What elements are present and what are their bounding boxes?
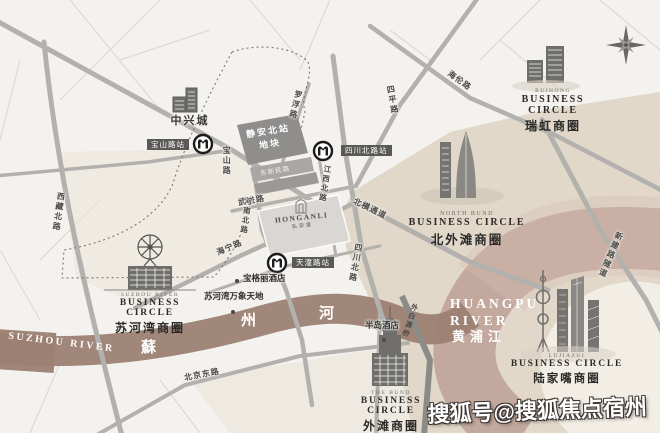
location-map: 中兴城 宝山路站 四川北路站 天潼路站 宝格丽酒店 苏河湾万象天地 半岛酒店 静… [0,0,660,433]
compass-icon [606,25,646,65]
circle-ruihong: RUIHONG BUSINESS CIRCLE 瑞虹商圈 [495,88,611,134]
station-badge-tiantong: 天潼路站 [292,257,334,268]
station-badge-baoshan: 宝山路站 [147,139,189,150]
road-label-baoshan: 宝山路 [222,146,231,176]
station-badge-sichuan: 四川北路站 [341,145,392,156]
bulgari-label: 宝格丽酒店 [243,274,286,284]
peninsula-label: 半岛酒店 [365,321,399,331]
mixc-label: 苏河湾万象天地 [204,292,264,302]
suzhou-river-char-2: 州 [241,313,256,330]
ruihong-building-icon [512,46,580,92]
bulgari-dot [235,279,239,283]
huangpu-river-cn-label: 黄浦江 [452,330,506,345]
metro-icon-tiantong [268,254,286,272]
suzhou-river-wide-end [0,349,55,353]
suzhou-river-char-1: 蘇 [141,340,156,357]
circle-lujiazui: LUJIAZUI BUSINESS CIRCLE 陆家嘴商圈 [508,353,626,386]
metro-icon-sichuan [314,142,332,160]
mixc-dot [231,310,235,314]
watermark: 搜狐号@搜狐焦点宿州站 [427,389,660,433]
circle-northbund: NORTH BUND BUSINESS CIRCLE 北外滩商圈 [408,211,526,248]
suzhou-river-char-3: 河 [319,306,334,323]
circle-suzhou: SUZHOU RIVER BUSINESS CIRCLE 苏河湾商圈 [98,292,202,336]
zhongxing-building-icon [173,88,197,112]
zhongxing-label: 中兴城 [158,115,222,128]
huangpu-river-en1-label: HUANGPU [450,296,539,312]
peninsula-dot [382,338,386,342]
metro-icon-baoshan [194,135,212,153]
huangpu-river-en2-label: RIVER [450,313,509,329]
